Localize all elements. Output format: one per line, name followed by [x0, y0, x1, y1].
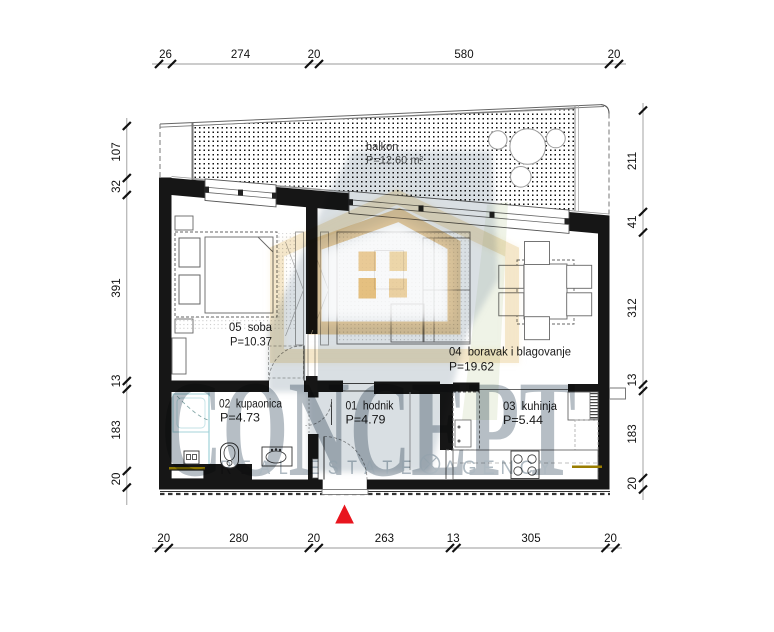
svg-text:183: 183 [111, 420, 123, 439]
svg-text:107: 107 [111, 142, 123, 161]
svg-text:20: 20 [308, 49, 321, 61]
svg-text:20: 20 [157, 533, 170, 545]
svg-text:P=10.37: P=10.37 [230, 337, 272, 349]
svg-text:AGENCY: AGENCY [444, 458, 557, 479]
svg-text:391: 391 [111, 278, 123, 297]
svg-text:263: 263 [375, 533, 394, 545]
svg-text:20: 20 [627, 477, 639, 490]
svg-text:26: 26 [159, 49, 172, 61]
svg-text:05 soba: 05 soba [229, 322, 273, 334]
svg-text:13: 13 [447, 533, 460, 545]
svg-text:211: 211 [627, 152, 639, 170]
svg-text:183: 183 [627, 424, 639, 443]
svg-text:REAL ESTATE: REAL ESTATE [220, 458, 420, 479]
svg-text:41: 41 [627, 216, 639, 229]
svg-text:13: 13 [111, 375, 123, 388]
svg-text:274: 274 [231, 49, 251, 61]
svg-text:CONCEPT: CONCEPT [161, 352, 576, 505]
svg-text:20: 20 [604, 533, 617, 545]
svg-text:13: 13 [627, 374, 639, 387]
svg-text:580: 580 [454, 49, 473, 61]
svg-text:20: 20 [307, 533, 320, 545]
svg-text:312: 312 [627, 298, 639, 317]
svg-text:32: 32 [111, 180, 123, 193]
svg-text:280: 280 [229, 533, 248, 545]
svg-text:20: 20 [111, 473, 123, 486]
svg-text:20: 20 [608, 49, 621, 61]
svg-text:305: 305 [521, 533, 540, 545]
